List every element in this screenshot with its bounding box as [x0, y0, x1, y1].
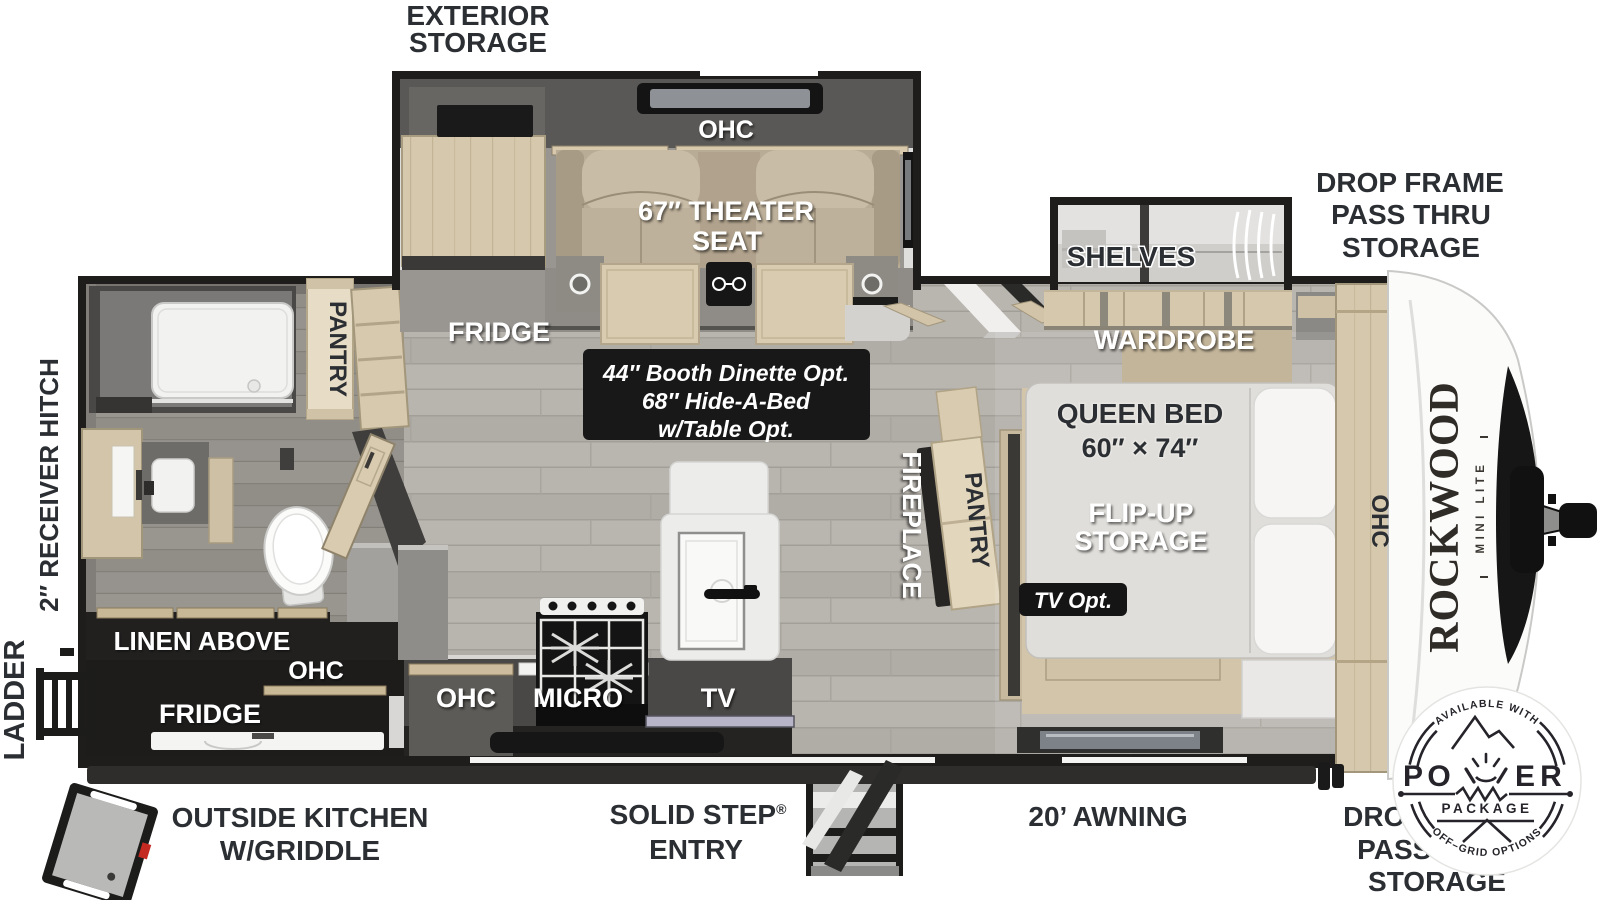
svg-text:MINI LITE: MINI LITE — [1475, 461, 1487, 554]
svg-text:QUEEN BED: QUEEN BED — [1057, 398, 1223, 429]
svg-text:STORAGE: STORAGE — [1074, 526, 1207, 556]
svg-text:PACKAGE: PACKAGE — [1441, 801, 1532, 816]
svg-text:OHC: OHC — [436, 683, 496, 713]
svg-text:60″ × 74″: 60″ × 74″ — [1082, 433, 1199, 463]
svg-text:FIREPLACE: FIREPLACE — [897, 451, 927, 598]
svg-text:W/GRIDDLE: W/GRIDDLE — [220, 835, 380, 866]
svg-text:P: P — [1403, 760, 1423, 793]
svg-text:2″ RECEIVER HITCH: 2″ RECEIVER HITCH — [34, 358, 64, 612]
svg-text:67″ THEATER: 67″ THEATER — [638, 196, 814, 226]
svg-text:SHELVES: SHELVES — [1067, 241, 1196, 272]
svg-text:STORAGE: STORAGE — [1342, 232, 1480, 263]
svg-text:R: R — [1540, 760, 1562, 793]
svg-text:20’ AWNING: 20’ AWNING — [1028, 801, 1187, 832]
svg-text:E: E — [1515, 760, 1535, 793]
svg-text:O: O — [1427, 760, 1450, 793]
svg-text:LADDER: LADDER — [0, 640, 31, 761]
svg-text:TV: TV — [701, 683, 736, 713]
svg-text:MICRO: MICRO — [533, 683, 623, 713]
svg-text:OHC: OHC — [1366, 494, 1393, 547]
svg-text:FRIDGE: FRIDGE — [448, 317, 550, 347]
svg-text:OHC: OHC — [288, 657, 344, 685]
svg-text:OHC: OHC — [698, 116, 754, 144]
svg-text:SEAT: SEAT — [692, 226, 763, 256]
svg-text:OUTSIDE KITCHEN: OUTSIDE KITCHEN — [172, 802, 429, 833]
svg-text:ROCKWOOD: ROCKWOOD — [1422, 381, 1468, 653]
svg-text:68″ Hide-A-Bed: 68″ Hide-A-Bed — [642, 388, 811, 414]
svg-text:LINEN ABOVE: LINEN ABOVE — [114, 626, 291, 656]
svg-text:FLIP-UP: FLIP-UP — [1089, 498, 1194, 528]
svg-text:44″ Booth Dinette Opt.: 44″ Booth Dinette Opt. — [602, 360, 849, 386]
svg-text:STORAGE: STORAGE — [409, 27, 547, 58]
svg-text:ENTRY: ENTRY — [649, 834, 743, 865]
svg-text:SOLID STEP®: SOLID STEP® — [610, 799, 787, 830]
svg-text:FRIDGE: FRIDGE — [159, 699, 261, 729]
svg-text:PASS THRU: PASS THRU — [1331, 199, 1491, 230]
svg-text:TV Opt.: TV Opt. — [1034, 588, 1112, 613]
svg-text:DROP FRAME: DROP FRAME — [1316, 167, 1504, 198]
svg-text:w/Table Opt.: w/Table Opt. — [658, 416, 794, 442]
svg-text:PANTRY: PANTRY — [324, 301, 351, 397]
svg-text:WARDROBE: WARDROBE — [1094, 325, 1255, 355]
